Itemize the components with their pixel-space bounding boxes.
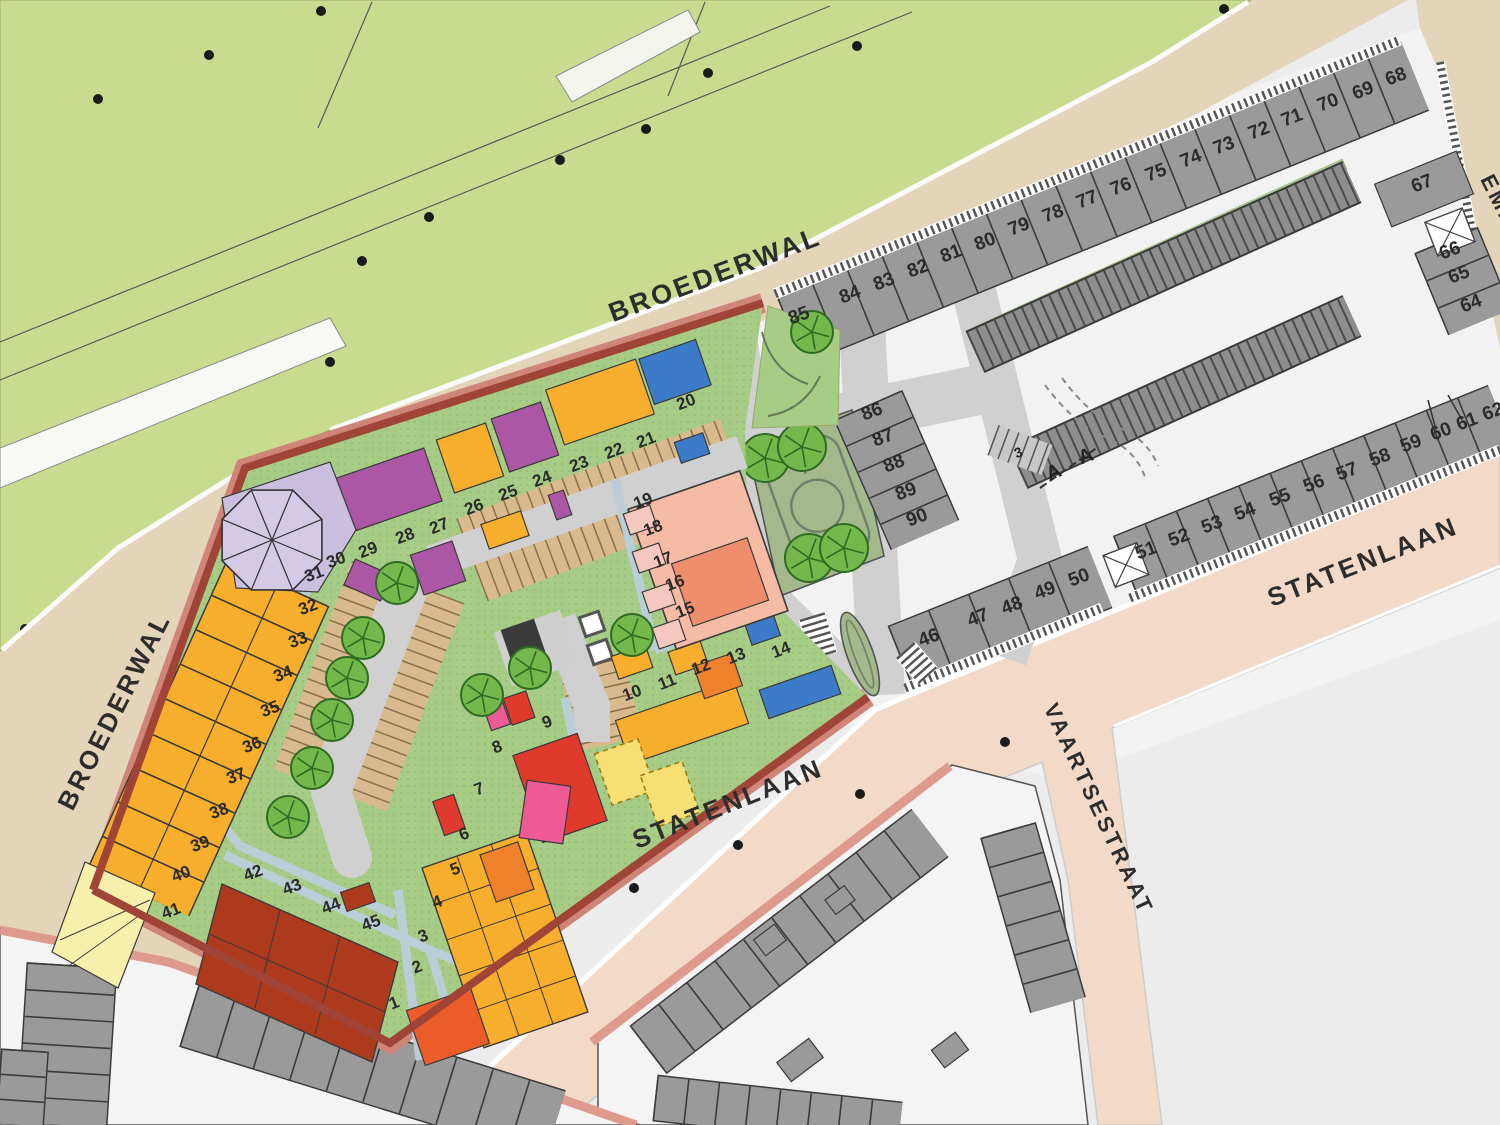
site-plan-map: BROEDERWAL BROEDERWAL STATENLAAN STATENL… <box>0 0 1500 1125</box>
site-plan-canvas: BROEDERWAL BROEDERWAL STATENLAAN STATENL… <box>0 0 1500 1125</box>
